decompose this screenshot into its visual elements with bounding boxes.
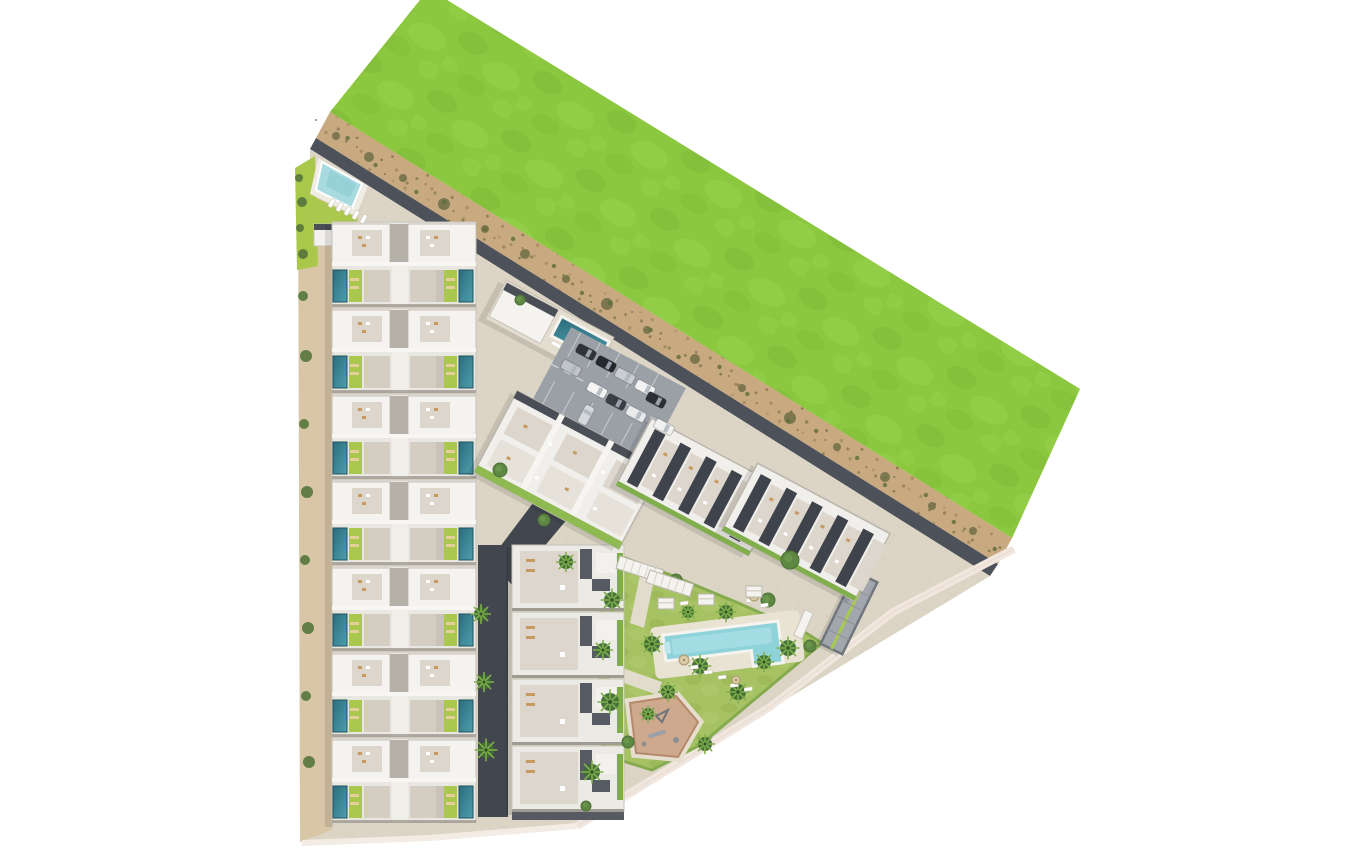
- bush-icon: [298, 249, 308, 259]
- terrace-furniture: [358, 494, 362, 497]
- garden-lounger: [350, 622, 359, 625]
- sand-speckle: [893, 476, 895, 478]
- roof-terrace: [420, 316, 450, 342]
- garden-lounger: [350, 278, 359, 281]
- stair-spine: [392, 266, 408, 306]
- sand-speckle: [530, 255, 533, 258]
- roof-terrace: [420, 660, 450, 686]
- party-wall: [332, 606, 476, 610]
- palm-tree-icon: [696, 735, 715, 754]
- palm-trunk: [762, 660, 765, 663]
- patio: [410, 528, 436, 560]
- sun-lounger: [744, 687, 752, 692]
- cluster-divider: [332, 304, 476, 307]
- roof-terrace: [352, 230, 382, 256]
- garden-lounger: [350, 630, 359, 633]
- tree-highlight: [583, 803, 588, 808]
- bush-icon: [296, 224, 304, 232]
- terrace-furniture: [434, 408, 438, 411]
- apartment-unit: [512, 679, 624, 745]
- palm-trunk: [610, 598, 614, 602]
- roof-gap: [390, 224, 408, 264]
- tree-highlight: [517, 297, 522, 302]
- core-wall: [580, 616, 592, 646]
- palm-trunk: [484, 748, 488, 752]
- private-pool: [459, 700, 473, 732]
- roof-terrace: [520, 685, 578, 737]
- shrub-icon: [520, 249, 530, 259]
- sand-speckle: [414, 190, 418, 194]
- cluster-divider: [332, 734, 476, 737]
- palm-tree-icon: [640, 706, 656, 722]
- palm-tree-icon: [581, 761, 603, 783]
- palm-trunk: [564, 560, 567, 563]
- terrace-furniture: [362, 588, 366, 591]
- terrace-furniture: [358, 752, 362, 755]
- sand-speckle: [640, 319, 643, 322]
- spring-rider: [642, 742, 647, 747]
- sand-speckle: [943, 511, 946, 514]
- sand-speckle: [902, 484, 905, 487]
- walkway: [436, 528, 444, 560]
- terrace-chair: [560, 786, 565, 791]
- sand-speckle: [846, 447, 849, 450]
- palm-trunk: [703, 742, 706, 745]
- apartment-unit: [512, 746, 624, 812]
- townhouse-cluster: [332, 308, 476, 393]
- sun-lounger: [704, 670, 712, 675]
- garden-lounger: [350, 458, 359, 461]
- terrace-furniture: [434, 752, 438, 755]
- garden-lounger: [446, 278, 455, 281]
- terrace-furniture: [358, 408, 362, 411]
- shrub-icon: [690, 354, 700, 364]
- unit-divider: [512, 742, 624, 745]
- sand-speckle: [373, 163, 377, 167]
- cluster-divider: [332, 476, 476, 479]
- roof-terrace: [420, 746, 450, 772]
- walkway: [436, 442, 444, 474]
- patio: [410, 786, 436, 818]
- south-block-shadow: [506, 547, 512, 815]
- shrub-icon: [399, 174, 407, 182]
- palm-tree-icon: [557, 553, 576, 572]
- tree-highlight: [495, 465, 501, 471]
- cabana-slat: [658, 602, 674, 604]
- palm-trunk: [608, 700, 612, 704]
- palm-tree-icon: [475, 739, 497, 761]
- private-pool: [333, 356, 347, 388]
- tree-highlight: [624, 738, 629, 743]
- terrace-furniture: [366, 494, 370, 497]
- terrace-furniture: [426, 494, 430, 497]
- garden-lounger: [446, 716, 455, 719]
- sand-speckle: [631, 311, 633, 313]
- townhouse-cluster: [332, 394, 476, 479]
- patio: [410, 442, 436, 474]
- patio: [364, 528, 390, 560]
- masterplan-svg: [0, 0, 1360, 850]
- garden-lounger: [446, 286, 455, 289]
- terrace-lounger: [526, 569, 535, 572]
- edge-hedge: [617, 754, 623, 800]
- sand-speckle: [797, 429, 799, 431]
- tree-icon: [581, 801, 591, 811]
- sand-speckle: [700, 365, 702, 367]
- sand-speckle: [855, 456, 859, 460]
- sand-speckle: [571, 282, 574, 285]
- sand-speckle: [659, 338, 661, 340]
- walkway: [436, 270, 444, 302]
- sand-speckle: [315, 119, 317, 121]
- garden-lounger: [446, 458, 455, 461]
- terrace-furniture: [358, 322, 362, 325]
- sand-speckle: [737, 383, 740, 386]
- townhouse-cluster: [332, 652, 476, 737]
- sand-speckle: [993, 547, 997, 551]
- roof-gap: [390, 654, 408, 694]
- palm-tree-icon: [601, 589, 623, 611]
- roof-terrace: [352, 746, 382, 772]
- patio: [410, 356, 436, 388]
- garden-lounger: [446, 536, 455, 539]
- terrace-furniture: [362, 502, 366, 505]
- party-wall: [332, 520, 476, 524]
- townhouse-cluster: [332, 480, 476, 565]
- tree-icon: [538, 514, 550, 526]
- terrace-furniture: [430, 760, 434, 763]
- sand-speckle: [384, 173, 386, 175]
- patio: [364, 786, 390, 818]
- garden-lounger: [446, 450, 455, 453]
- sand-speckle: [728, 375, 730, 377]
- tree-highlight: [784, 554, 792, 562]
- terrace-lounger: [526, 760, 535, 763]
- party-wall: [332, 692, 476, 696]
- terrace-furniture: [426, 580, 430, 583]
- terrace-furniture: [426, 236, 430, 239]
- private-pool: [333, 614, 347, 646]
- sand-speckle: [337, 127, 340, 130]
- sand-speckle: [825, 439, 827, 441]
- south-block-end-wall: [512, 812, 624, 820]
- palm-trunk: [687, 611, 690, 614]
- terrace-furniture: [426, 322, 430, 325]
- stair-spine: [392, 610, 408, 650]
- sand-speckle: [883, 483, 887, 487]
- sand-speckle: [461, 218, 464, 221]
- core-wall: [592, 713, 610, 725]
- terrace-chair: [560, 652, 565, 657]
- garden-lounger: [350, 794, 359, 797]
- sun-lounger: [680, 601, 688, 606]
- terrace-furniture: [366, 236, 370, 239]
- tree-icon: [804, 640, 816, 652]
- bush-icon: [300, 555, 310, 565]
- terrace-furniture: [358, 580, 362, 583]
- private-pool: [333, 528, 347, 560]
- terrace-furniture: [366, 322, 370, 325]
- sand-speckle: [934, 503, 936, 505]
- shrub-icon: [880, 472, 890, 482]
- patio: [364, 270, 390, 302]
- sand-speckle: [511, 237, 515, 241]
- palm-tree-icon: [717, 603, 736, 622]
- palm-trunk: [736, 690, 740, 694]
- roof-terrace: [352, 402, 382, 428]
- private-pool: [333, 786, 347, 818]
- palm-tree-icon: [594, 641, 613, 660]
- terrace-furniture: [430, 416, 434, 419]
- sand-speckle: [649, 328, 653, 332]
- garden-lounger: [446, 622, 455, 625]
- terrace-furniture: [430, 244, 434, 247]
- terrace-furniture: [434, 666, 438, 669]
- sand-speckle: [425, 183, 427, 185]
- bush-icon: [299, 419, 309, 429]
- garden-lounger: [446, 544, 455, 547]
- terrace-furniture: [362, 244, 366, 247]
- sand-speckle: [442, 200, 446, 204]
- terrace-chair: [560, 585, 565, 590]
- terrace-furniture: [362, 330, 366, 333]
- tree-icon: [781, 551, 799, 569]
- roof-terrace: [352, 316, 382, 342]
- roof-terrace: [352, 574, 382, 600]
- private-pool: [333, 270, 347, 302]
- cabana: [658, 598, 674, 609]
- garden-lounger: [446, 708, 455, 711]
- terrace-furniture: [362, 674, 366, 677]
- upper-roof: [596, 553, 616, 573]
- palm-trunk: [650, 642, 654, 646]
- terrace-lounger: [526, 770, 535, 773]
- stair-spine: [392, 438, 408, 478]
- roof-terrace: [352, 660, 382, 686]
- roof-gap: [390, 310, 408, 350]
- garden-lounger: [350, 802, 359, 805]
- terrace-furniture: [426, 408, 430, 411]
- upper-roof: [596, 620, 616, 640]
- sand-speckle: [756, 402, 758, 404]
- sand-speckle: [924, 493, 928, 497]
- playground: [630, 696, 698, 757]
- bush-icon: [301, 486, 313, 498]
- roof-terrace: [520, 618, 578, 670]
- sand-speckle: [777, 410, 780, 413]
- sand-speckle: [580, 291, 584, 295]
- garden-lounger: [350, 450, 359, 453]
- terrace-lounger: [526, 693, 535, 696]
- core-wall: [592, 579, 610, 591]
- sand-speckle: [356, 146, 358, 148]
- unit-divider: [512, 675, 624, 678]
- private-pool: [459, 270, 473, 302]
- palm-tree-icon: [472, 605, 491, 624]
- terrace-furniture: [366, 666, 370, 669]
- tree-highlight: [540, 516, 545, 521]
- shrub-icon: [562, 275, 570, 283]
- sand-speckle: [971, 538, 974, 541]
- sand-speckle: [453, 210, 455, 212]
- roof-terrace: [352, 488, 382, 514]
- stair-spine: [392, 524, 408, 564]
- cabana-slat: [746, 590, 762, 592]
- cabana: [698, 594, 714, 605]
- sand-speckle: [745, 392, 749, 396]
- unit-divider: [512, 809, 624, 812]
- spring-rider: [673, 737, 679, 743]
- terrace-furniture: [430, 588, 434, 591]
- party-wall: [332, 348, 476, 352]
- sand-speckle: [805, 420, 808, 423]
- private-pool: [459, 528, 473, 560]
- terrace-furniture: [362, 760, 366, 763]
- patio: [410, 614, 436, 646]
- shrub-icon: [833, 443, 841, 451]
- tree-icon: [515, 295, 525, 305]
- private-pool: [333, 442, 347, 474]
- sand-speckle: [709, 356, 712, 359]
- roof-terrace: [420, 230, 450, 256]
- terrace-furniture: [426, 752, 430, 755]
- bush-icon: [295, 174, 303, 182]
- garden-lounger: [446, 372, 455, 375]
- sand-speckle: [668, 346, 671, 349]
- patio: [364, 442, 390, 474]
- terrace-furniture: [434, 580, 438, 583]
- bush-icon: [301, 691, 311, 701]
- roof-gap: [390, 396, 408, 436]
- patio: [364, 614, 390, 646]
- terrace-furniture: [366, 752, 370, 755]
- tree-icon: [622, 736, 634, 748]
- garden-lounger: [350, 364, 359, 367]
- palm-trunk: [698, 664, 702, 668]
- townhouse-cluster: [332, 566, 476, 651]
- roof-terrace: [420, 402, 450, 428]
- core-wall: [580, 683, 592, 713]
- roof-terrace: [520, 752, 578, 804]
- sand-speckle: [608, 301, 612, 305]
- palm-trunk: [647, 713, 650, 716]
- parasol-pole: [683, 659, 685, 661]
- bush-icon: [298, 291, 308, 301]
- roof-terrace: [420, 574, 450, 600]
- terrace-furniture: [366, 580, 370, 583]
- palm-trunk: [482, 680, 485, 683]
- sand-speckle: [406, 181, 409, 184]
- sand-speckle: [502, 245, 505, 248]
- palm-trunk: [666, 690, 669, 693]
- townhouse-cluster: [332, 222, 476, 307]
- palm-trunk: [786, 646, 790, 650]
- garden-lounger: [446, 794, 455, 797]
- tree-icon: [493, 463, 507, 477]
- terrace-furniture: [362, 416, 366, 419]
- sand-speckle: [717, 365, 721, 369]
- palm-tree-icon: [680, 604, 696, 620]
- party-wall: [332, 434, 476, 438]
- private-pool: [333, 700, 347, 732]
- palm-tree-icon: [659, 683, 678, 702]
- sand-speckle: [865, 466, 867, 468]
- tree-highlight: [763, 595, 769, 601]
- sand-speckle: [786, 419, 790, 423]
- sand-speckle: [962, 530, 964, 532]
- palm-trunk: [479, 612, 482, 615]
- party-wall: [332, 778, 476, 782]
- stair-spine: [392, 352, 408, 392]
- palm-tree-icon: [641, 633, 663, 655]
- patio: [410, 270, 436, 302]
- shrub-icon: [969, 527, 977, 535]
- garden-lounger: [350, 544, 359, 547]
- terrace-lounger: [526, 559, 535, 562]
- townhouse-cluster: [332, 738, 476, 823]
- walkway: [436, 356, 444, 388]
- private-pool: [459, 356, 473, 388]
- sand-speckle: [874, 474, 877, 477]
- walkway: [436, 786, 444, 818]
- garden-lounger: [350, 536, 359, 539]
- cluster-divider: [332, 820, 476, 823]
- cluster-divider: [332, 648, 476, 651]
- sand-speckle: [676, 355, 680, 359]
- shrub-icon: [332, 132, 340, 140]
- patio: [410, 700, 436, 732]
- sand-speckle: [562, 274, 564, 276]
- sun-lounger: [760, 603, 768, 608]
- sand-speckle: [433, 191, 436, 194]
- palm-trunk: [590, 770, 594, 774]
- palm-trunk: [724, 610, 727, 613]
- garden-lounger: [350, 372, 359, 375]
- tree-highlight: [806, 642, 811, 647]
- terrace-furniture: [434, 322, 438, 325]
- terrace-furniture: [430, 502, 434, 505]
- terrace-furniture: [366, 408, 370, 411]
- garden-lounger: [350, 716, 359, 719]
- private-pool: [459, 786, 473, 818]
- core-wall: [592, 780, 610, 792]
- bush-icon: [300, 350, 312, 362]
- bush-icon: [297, 197, 307, 207]
- sand-speckle: [483, 227, 487, 231]
- sand-speckle: [952, 520, 956, 524]
- terrace-lounger: [526, 626, 535, 629]
- cluster-divider: [332, 390, 476, 393]
- terrace-furniture: [434, 494, 438, 497]
- bush-icon: [303, 756, 315, 768]
- bush-icon: [302, 622, 314, 634]
- terrace-lounger: [526, 636, 535, 639]
- stair-spine: [392, 782, 408, 822]
- sand-speckle: [814, 429, 818, 433]
- palm-tree-icon: [598, 690, 622, 714]
- cluster-divider: [332, 562, 476, 565]
- patio: [364, 700, 390, 732]
- garden-lounger: [446, 364, 455, 367]
- roof-gap: [390, 568, 408, 608]
- terrace-furniture: [430, 330, 434, 333]
- walkway: [436, 614, 444, 646]
- sand-speckle: [521, 247, 523, 249]
- party-wall: [332, 262, 476, 266]
- roof-terrace: [420, 488, 450, 514]
- palm-tree-icon: [755, 653, 774, 672]
- garden-lounger: [446, 630, 455, 633]
